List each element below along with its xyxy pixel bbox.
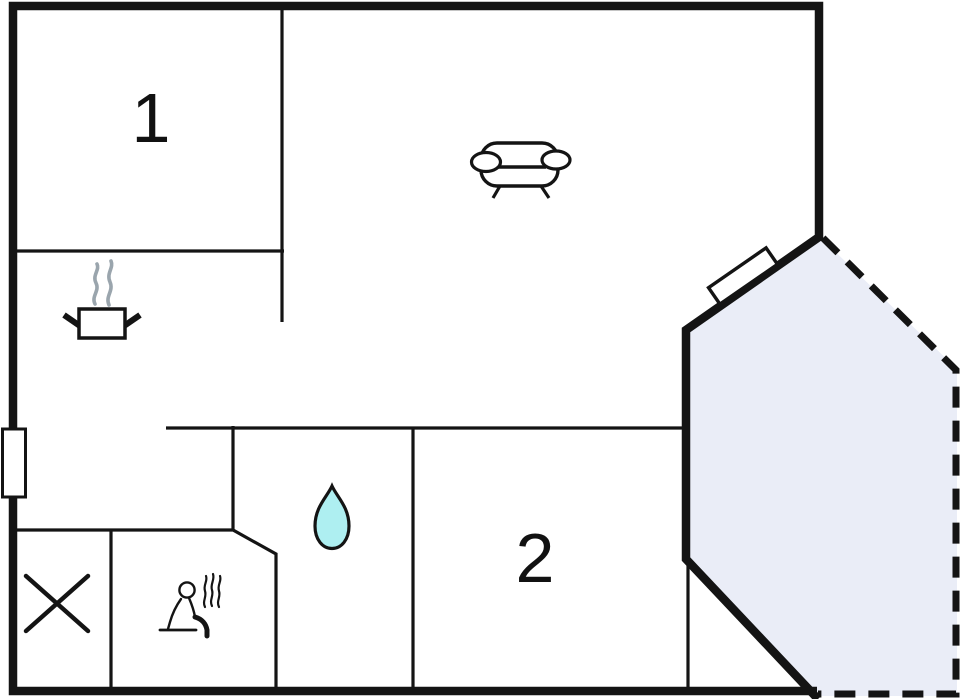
sauna-person-arm bbox=[168, 599, 181, 629]
steam-wave-1 bbox=[94, 264, 98, 304]
floor-plan-svg: 1 2 bbox=[0, 0, 960, 699]
sauna-steam-wave-2 bbox=[211, 574, 213, 606]
interior-walls bbox=[9, 6, 689, 692]
left-wall-window bbox=[3, 429, 26, 497]
sauna-person-leg bbox=[195, 617, 207, 636]
floor-plan: 1 2 bbox=[0, 0, 960, 699]
sauna-person-torso bbox=[189, 598, 195, 617]
pot-body bbox=[79, 309, 125, 338]
sauna-person-icon bbox=[160, 574, 220, 636]
room-1-label: 1 bbox=[132, 79, 171, 157]
steam-icon bbox=[94, 261, 112, 305]
sofa-icon bbox=[472, 143, 571, 198]
cross-icon bbox=[26, 576, 88, 631]
water-drop-icon bbox=[315, 486, 349, 549]
cooking-pot-icon bbox=[64, 309, 140, 338]
floor-plan-page: { "plan": { "rooms": [ { "id": "room-1",… bbox=[0, 0, 960, 699]
room-2-label: 2 bbox=[516, 519, 555, 597]
terrace-area bbox=[687, 239, 957, 696]
sauna-person-head bbox=[179, 582, 194, 597]
sauna-steam-wave-3 bbox=[218, 576, 220, 607]
sofa-armrest-left bbox=[472, 153, 501, 172]
sauna-steam-wave-1 bbox=[204, 576, 206, 607]
sofa-leg-left bbox=[493, 186, 500, 198]
steam-wave-2 bbox=[108, 261, 112, 305]
sofa-leg-right bbox=[541, 186, 549, 198]
sofa-armrest-right bbox=[542, 151, 570, 169]
